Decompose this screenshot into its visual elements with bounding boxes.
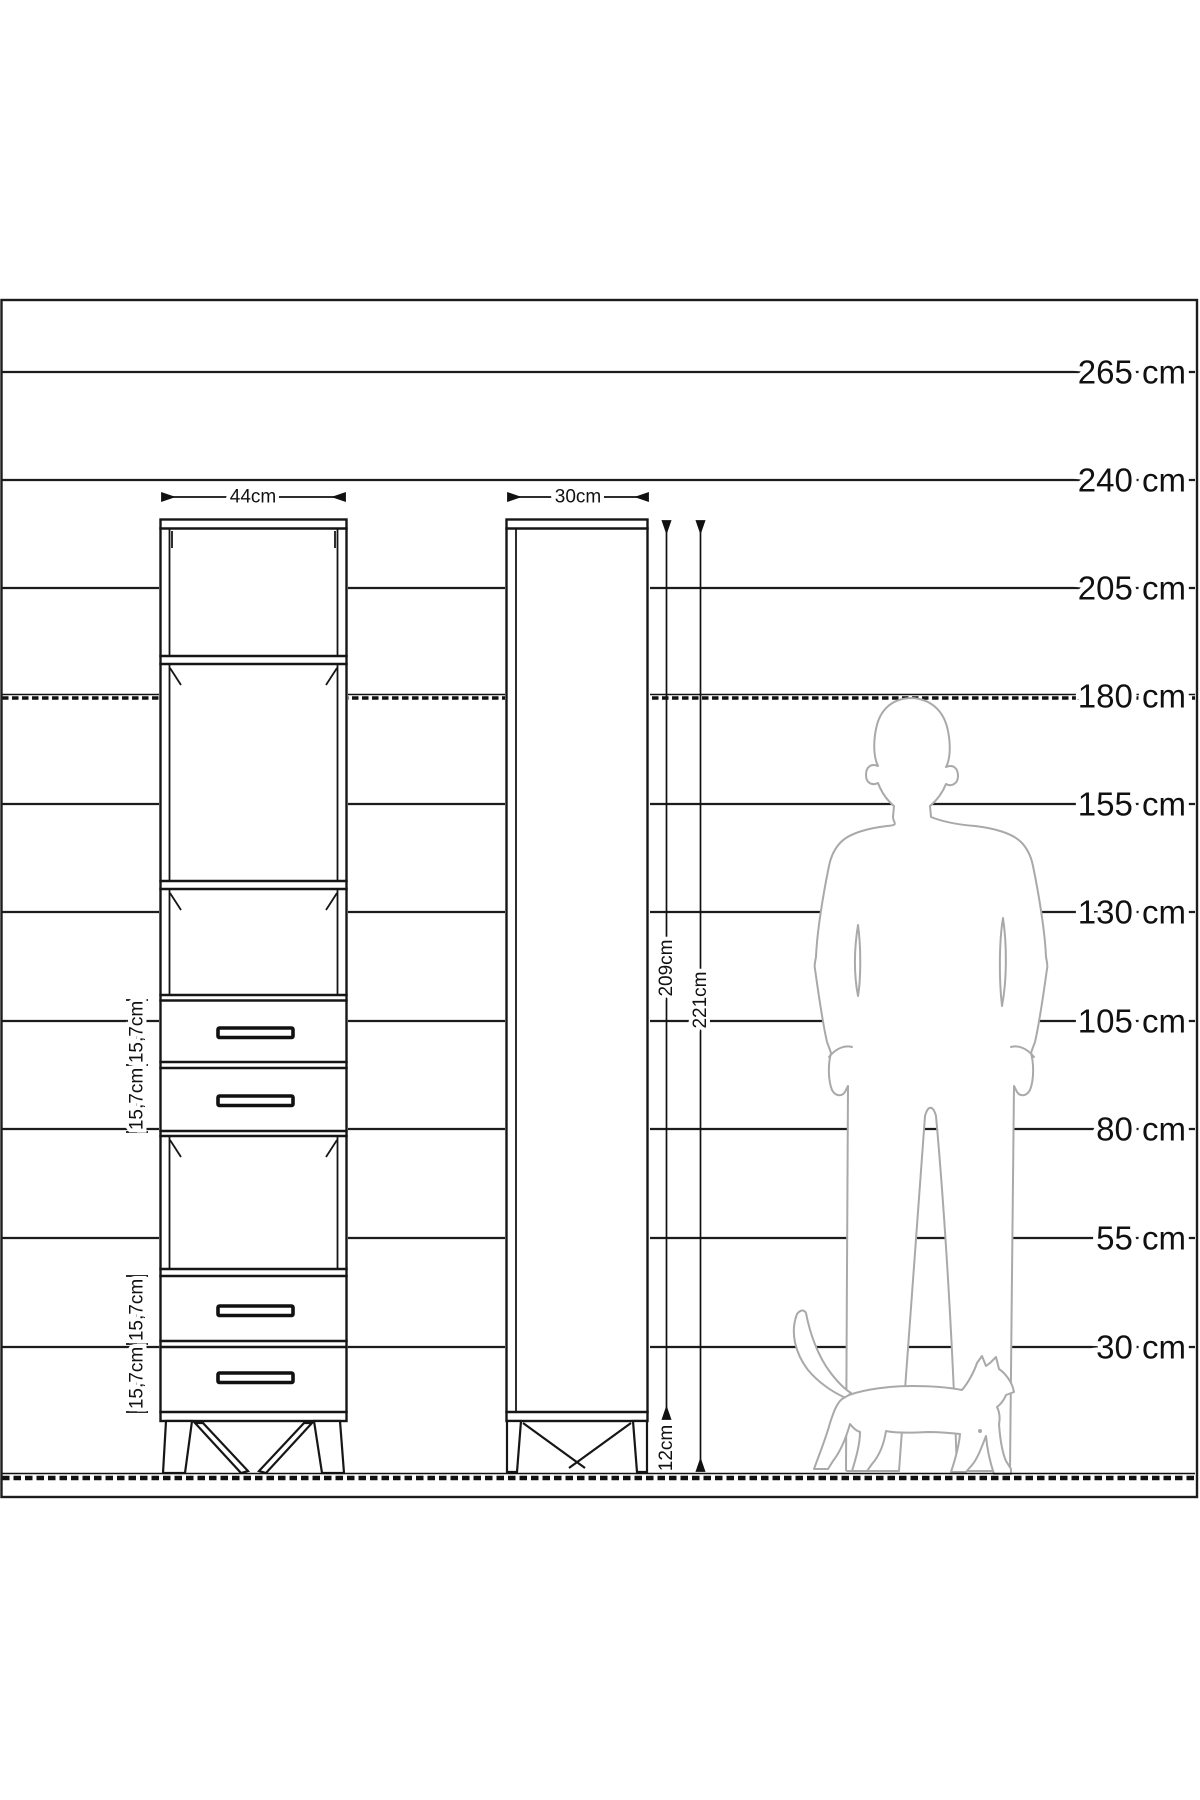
- scale-label-180: 180 cm: [1078, 678, 1186, 715]
- front-leg-back-right: [259, 1423, 312, 1473]
- total-height-label: 221cm: [690, 971, 711, 1028]
- front-leg-left: [163, 1421, 192, 1473]
- front-legs: [163, 1421, 344, 1473]
- drawer-handle: [218, 1373, 293, 1383]
- leg-height-label: 12cm: [656, 1425, 677, 1471]
- height-scale-labels: 265 cm 240 cm 205 cm 180 cm 155 cm 130 c…: [1078, 354, 1186, 1366]
- drawer-handle: [218, 1028, 293, 1038]
- body-height-label: 209cm: [656, 939, 677, 996]
- scale-label-155: 155 cm: [1078, 786, 1186, 823]
- side-leg-brace-left: [523, 1423, 585, 1468]
- furniture-dimension-diagram: 44cm 30cm 209cm 221cm 12cm 15,7cm 15,7cm…: [0, 0, 1200, 1800]
- scale-label-30: 30 cm: [1096, 1329, 1186, 1366]
- scale-label-265: 265 cm: [1078, 354, 1186, 391]
- drawer-height-dims: 15,7cm 15,7cm 15,7cm 15,7cm: [126, 1000, 148, 1412]
- front-body-fill: [159, 518, 348, 1422]
- cabinet-side-view: [505, 518, 650, 1472]
- front-leg-back-left: [195, 1423, 248, 1473]
- side-legs: [507, 1421, 647, 1472]
- cabinet-front-view: [159, 518, 348, 1473]
- human-arm-gap-right: [1000, 918, 1006, 1006]
- front-width-label: 44cm: [230, 487, 276, 508]
- side-leg-left: [507, 1421, 521, 1472]
- scale-label-240: 240 cm: [1078, 462, 1186, 499]
- diagram-canvas: 44cm 30cm 209cm 221cm 12cm 15,7cm 15,7cm…: [0, 0, 1200, 1800]
- side-body-fill: [505, 518, 650, 1422]
- floor-line: [2, 1474, 1195, 1479]
- drawer-height-label-4: 15,7cm: [127, 1347, 148, 1409]
- drawer-height-label-3: 15,7cm: [127, 1279, 148, 1341]
- scale-label-130: 130 cm: [1078, 894, 1186, 931]
- scale-label-55: 55 cm: [1096, 1220, 1186, 1257]
- drawer-handle: [218, 1306, 293, 1316]
- cat-marking-dot: [978, 1429, 982, 1433]
- drawer-height-label-1: 15,7cm: [127, 1001, 148, 1063]
- drawer-height-label-2: 15,7cm: [127, 1068, 148, 1130]
- scale-label-105: 105 cm: [1078, 1003, 1186, 1040]
- side-leg-brace-right: [569, 1423, 631, 1468]
- human-arm-gap-left: [855, 925, 860, 996]
- side-leg-right: [633, 1421, 647, 1472]
- scale-label-205: 205 cm: [1078, 570, 1186, 607]
- human-outline: [815, 698, 1048, 1471]
- human-silhouette: [815, 698, 1048, 1471]
- side-depth-label: 30cm: [555, 487, 601, 508]
- scale-label-80: 80 cm: [1096, 1111, 1186, 1148]
- front-leg-right: [314, 1421, 344, 1473]
- drawer-handle: [218, 1096, 293, 1106]
- cat-tail: [794, 1310, 851, 1398]
